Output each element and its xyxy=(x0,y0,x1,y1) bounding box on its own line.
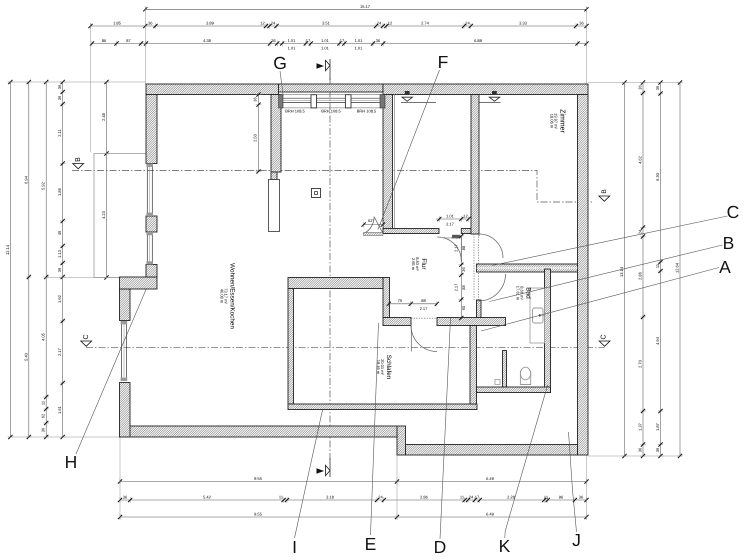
svg-text:24: 24 xyxy=(469,495,474,500)
svg-text:2.11: 2.11 xyxy=(57,128,62,136)
svg-text:12.14: 12.14 xyxy=(5,244,10,255)
svg-text:88: 88 xyxy=(461,285,466,290)
svg-text:12: 12 xyxy=(388,21,393,26)
svg-text:36: 36 xyxy=(123,495,128,500)
svg-text:40.08 m: 40.08 m xyxy=(220,289,225,304)
svg-text:2.70: 2.70 xyxy=(638,359,643,368)
svg-text:17.61 m: 17.61 m xyxy=(516,286,521,301)
svg-text:Aussparung: Aussparung xyxy=(444,236,458,239)
svg-text:15.17: 15.17 xyxy=(360,4,371,9)
svg-text:G: G xyxy=(273,53,287,73)
svg-text:B: B xyxy=(75,157,82,162)
svg-text:36: 36 xyxy=(579,21,584,26)
svg-text:88: 88 xyxy=(461,245,466,250)
svg-text:2.17: 2.17 xyxy=(57,347,62,356)
svg-text:1.01: 1.01 xyxy=(288,46,297,51)
svg-text:36: 36 xyxy=(655,85,660,90)
svg-text:6.88: 6.88 xyxy=(474,38,483,43)
svg-text:24: 24 xyxy=(271,21,276,26)
svg-text:36: 36 xyxy=(638,85,643,90)
svg-text:1.85: 1.85 xyxy=(113,21,122,26)
svg-text:36: 36 xyxy=(57,95,62,100)
svg-text:1.37: 1.37 xyxy=(638,422,643,431)
svg-text:4.38: 4.38 xyxy=(203,38,212,43)
svg-text:12: 12 xyxy=(260,21,265,26)
svg-text:87: 87 xyxy=(126,38,131,43)
svg-text:3.89: 3.89 xyxy=(206,21,215,26)
svg-text:1.01: 1.01 xyxy=(446,213,455,218)
svg-text:36: 36 xyxy=(376,38,381,43)
svg-text:1.86: 1.86 xyxy=(57,187,62,196)
svg-text:2.48: 2.48 xyxy=(101,112,106,121)
svg-text:6.30: 6.30 xyxy=(655,172,660,181)
svg-text:2.86: 2.86 xyxy=(420,495,429,500)
svg-text:9.55: 9.55 xyxy=(254,512,263,517)
svg-text:D: D xyxy=(434,537,447,557)
svg-text:36: 36 xyxy=(253,97,258,102)
svg-text:6.49: 6.49 xyxy=(486,476,495,481)
svg-text:2.17: 2.17 xyxy=(420,306,429,311)
svg-text:1.01: 1.01 xyxy=(355,46,364,51)
svg-text:36: 36 xyxy=(638,447,643,452)
svg-text:1.01: 1.01 xyxy=(288,38,297,43)
svg-text:62°: 62° xyxy=(368,218,374,223)
svg-text:49: 49 xyxy=(57,230,62,235)
svg-text:2.17: 2.17 xyxy=(446,222,455,227)
svg-text:1.87: 1.87 xyxy=(655,422,660,431)
svg-text:12: 12 xyxy=(463,213,468,218)
svg-text:13.14: 13.14 xyxy=(619,266,624,277)
svg-text:9.55: 9.55 xyxy=(254,476,263,481)
svg-text:17: 17 xyxy=(475,495,480,500)
svg-text:17: 17 xyxy=(340,38,345,43)
svg-text:36: 36 xyxy=(57,84,62,89)
svg-text:C: C xyxy=(83,334,90,339)
svg-text:1.61: 1.61 xyxy=(57,405,62,414)
svg-text:4.94: 4.94 xyxy=(655,336,660,345)
svg-text:24: 24 xyxy=(377,21,382,26)
svg-text:60: 60 xyxy=(461,305,466,310)
svg-text:1.92: 1.92 xyxy=(57,294,62,303)
svg-text:4.05: 4.05 xyxy=(41,332,46,341)
svg-text:4.23: 4.23 xyxy=(101,210,106,219)
svg-text:BRH 108.5: BRH 108.5 xyxy=(321,109,341,114)
svg-text:B: B xyxy=(601,189,608,193)
svg-text:H: H xyxy=(65,452,78,472)
svg-text:88: 88 xyxy=(421,298,426,303)
svg-text:1.13: 1.13 xyxy=(57,249,62,258)
svg-text:2.17: 2.17 xyxy=(453,243,458,252)
svg-text:17: 17 xyxy=(306,38,311,43)
svg-text:3.18: 3.18 xyxy=(326,495,335,500)
svg-text:C: C xyxy=(601,334,608,339)
svg-text:1.01: 1.01 xyxy=(321,38,330,43)
svg-text:6.94: 6.94 xyxy=(23,175,28,184)
svg-text:BRH 108.5: BRH 108.5 xyxy=(357,109,377,114)
svg-text:5.92: 5.92 xyxy=(41,181,46,190)
svg-text:24: 24 xyxy=(378,495,383,500)
svg-text:24: 24 xyxy=(465,21,470,26)
svg-text:I: I xyxy=(292,537,297,557)
svg-text:C: C xyxy=(727,202,740,222)
svg-text:1.01: 1.01 xyxy=(321,46,330,51)
svg-text:3.51: 3.51 xyxy=(322,21,331,26)
svg-text:Zimmer: Zimmer xyxy=(559,109,567,133)
svg-text:75: 75 xyxy=(398,298,403,303)
svg-text:4.62: 4.62 xyxy=(638,155,643,164)
svg-text:96: 96 xyxy=(559,495,564,500)
svg-text:6.49: 6.49 xyxy=(486,512,495,517)
svg-text:12.64: 12.64 xyxy=(675,262,680,273)
svg-text:36: 36 xyxy=(579,495,584,500)
svg-text:K: K xyxy=(499,536,511,556)
svg-text:39: 39 xyxy=(57,267,62,272)
svg-text:E: E xyxy=(365,534,377,554)
svg-text:5.42: 5.42 xyxy=(203,495,212,500)
svg-text:36: 36 xyxy=(148,21,153,26)
svg-text:5.40: 5.40 xyxy=(23,352,28,361)
svg-text:36: 36 xyxy=(461,267,466,272)
svg-text:2.86: 2.86 xyxy=(638,271,643,280)
svg-text:2.50: 2.50 xyxy=(253,133,258,142)
svg-text:2.65 m: 2.65 m xyxy=(411,258,416,271)
svg-text:36: 36 xyxy=(271,38,276,43)
svg-text:86: 86 xyxy=(102,38,107,43)
svg-text:2.74: 2.74 xyxy=(421,21,430,26)
svg-text:62: 62 xyxy=(41,413,46,418)
svg-text:36: 36 xyxy=(41,427,46,432)
svg-text:BRH 108.5: BRH 108.5 xyxy=(285,109,305,114)
svg-text:J: J xyxy=(572,530,581,550)
svg-text:1.01: 1.01 xyxy=(355,38,364,43)
svg-text:18.06 m: 18.06 m xyxy=(550,114,555,129)
svg-text:3.33: 3.33 xyxy=(519,21,528,26)
svg-text:B: B xyxy=(723,233,735,253)
svg-text:2.17: 2.17 xyxy=(453,283,458,292)
svg-text:24: 24 xyxy=(638,229,643,234)
svg-text:F: F xyxy=(438,52,449,72)
svg-text:36: 36 xyxy=(655,447,660,452)
svg-text:A: A xyxy=(719,257,731,277)
